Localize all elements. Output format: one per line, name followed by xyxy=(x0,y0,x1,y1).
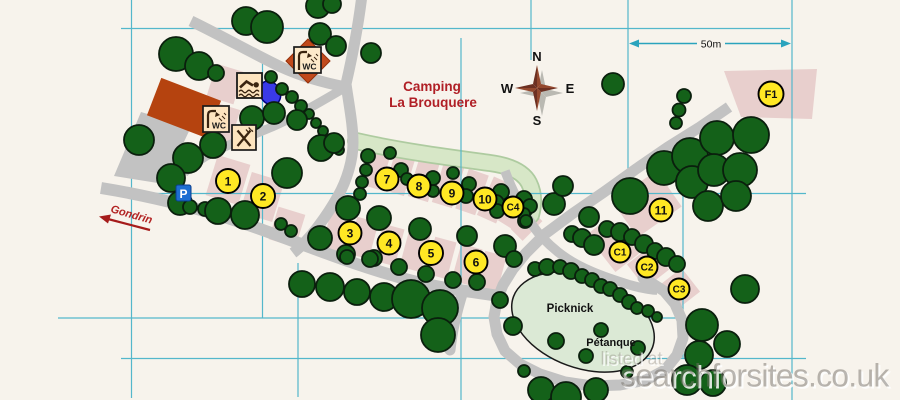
svg-text:searchforsites.co.uk: searchforsites.co.uk xyxy=(620,358,890,394)
svg-text:10: 10 xyxy=(478,193,492,207)
svg-text:1: 1 xyxy=(225,175,232,189)
svg-text:2: 2 xyxy=(260,190,267,204)
svg-text:E: E xyxy=(566,81,575,96)
svg-text:C3: C3 xyxy=(673,285,686,296)
svg-text:3: 3 xyxy=(347,227,354,241)
svg-text:C4: C4 xyxy=(507,203,520,214)
svg-text:7: 7 xyxy=(384,173,391,187)
svg-text:F1: F1 xyxy=(765,89,778,101)
svg-text:La Brouquere: La Brouquere xyxy=(389,95,477,110)
svg-text:11: 11 xyxy=(655,204,668,218)
svg-text:Picknick: Picknick xyxy=(547,303,594,315)
svg-text:C2: C2 xyxy=(641,263,654,274)
svg-text:Pétanque: Pétanque xyxy=(586,337,636,349)
svg-text:50m: 50m xyxy=(701,39,722,51)
svg-text:6: 6 xyxy=(473,256,480,270)
svg-text:Camping: Camping xyxy=(403,79,461,94)
svg-text:8: 8 xyxy=(416,180,423,194)
svg-text:4: 4 xyxy=(386,237,393,251)
svg-text:WC: WC xyxy=(302,62,316,72)
svg-text:N: N xyxy=(532,49,541,64)
svg-text:WC: WC xyxy=(212,121,226,131)
svg-text:9: 9 xyxy=(449,187,456,201)
svg-text:W: W xyxy=(501,81,514,96)
svg-text:S: S xyxy=(533,113,542,128)
svg-text:C1: C1 xyxy=(614,248,627,259)
svg-text:5: 5 xyxy=(428,247,435,261)
svg-text:P: P xyxy=(179,187,187,201)
